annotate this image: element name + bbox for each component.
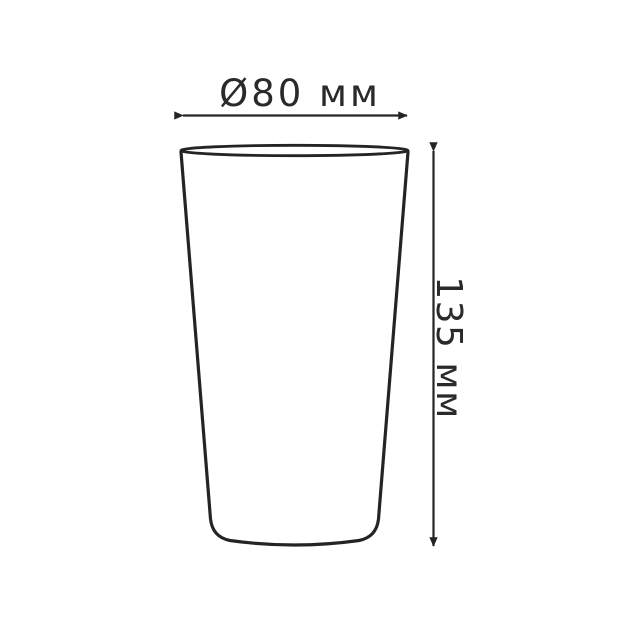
height-dimension: 135 мм — [428, 151, 469, 546]
diameter-label: Ø80 мм — [219, 72, 381, 115]
technical-drawing: Ø80 мм 135 мм — [0, 0, 635, 635]
cup-rim-ellipse — [181, 145, 408, 155]
drawing-svg: Ø80 мм 135 мм — [0, 0, 635, 635]
height-label: 135 мм — [428, 276, 469, 419]
diameter-dimension: Ø80 мм — [183, 72, 407, 116]
cup-outline — [181, 145, 408, 545]
cup-body-path — [181, 152, 408, 545]
